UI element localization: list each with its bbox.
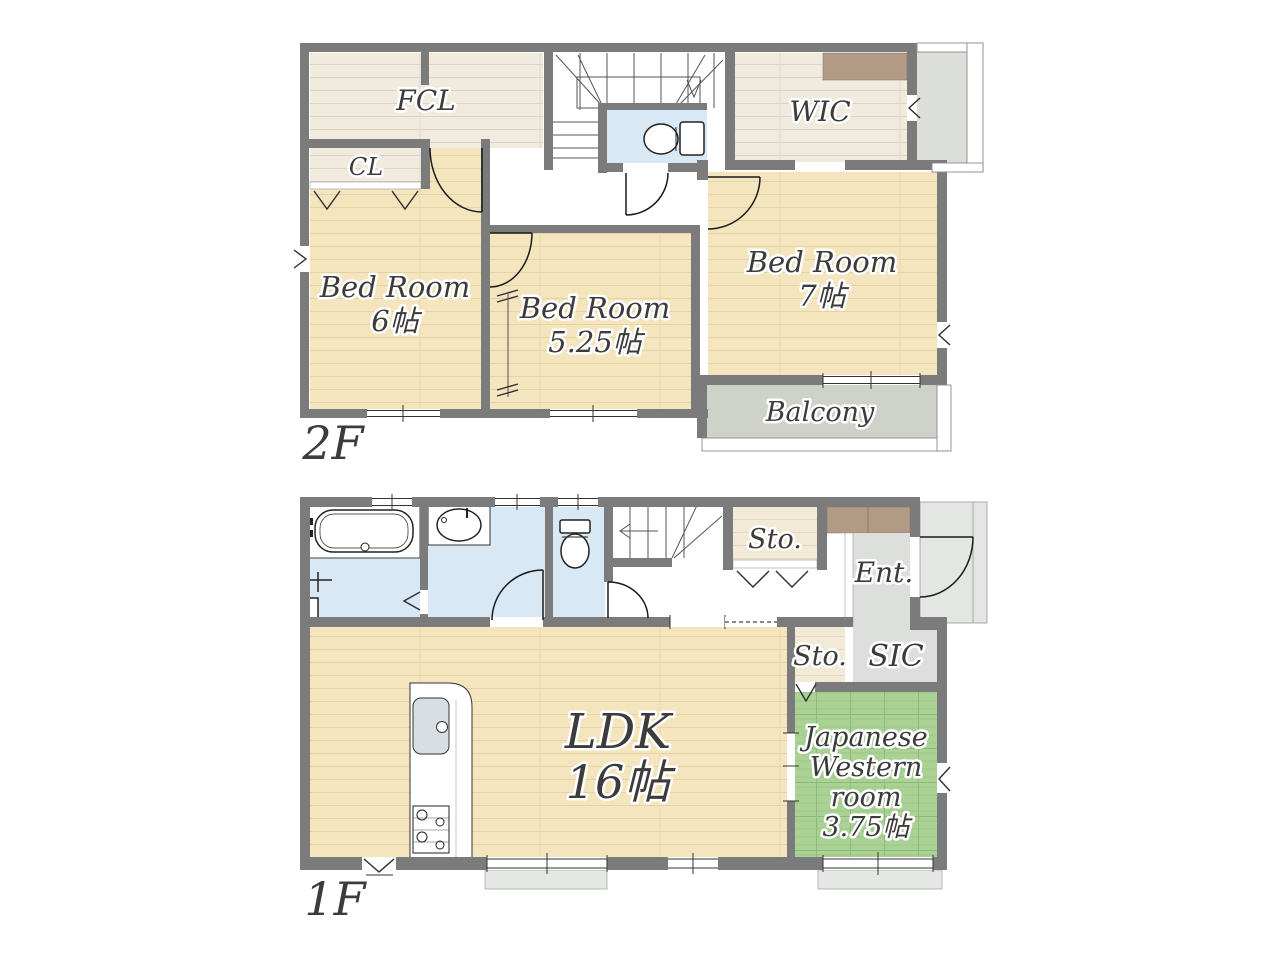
terrace-tatami bbox=[818, 870, 942, 889]
label-ldk-size: 16帖 bbox=[566, 755, 677, 809]
label-jwr-4: 3.75帖 bbox=[822, 812, 913, 843]
label-entrance: Ent. bbox=[854, 556, 914, 589]
label-jwr-1: Japanese bbox=[799, 722, 928, 753]
opening-ldk-tatami bbox=[787, 733, 795, 801]
label-cl: CL bbox=[349, 153, 383, 181]
label-sto-tatami: Sto. bbox=[793, 641, 847, 672]
label-bed7-size: 7帖 bbox=[798, 279, 849, 313]
label-fcl: FCL bbox=[395, 84, 455, 117]
entrance-step bbox=[845, 533, 853, 627]
label-bed6-name: Bed Room bbox=[319, 270, 471, 304]
kitchen-sink-icon bbox=[413, 698, 449, 754]
toilet-icon-1f bbox=[560, 520, 590, 568]
wic-closet bbox=[823, 53, 907, 80]
sliding-door-ldk bbox=[725, 617, 777, 627]
cl-shelf bbox=[310, 182, 421, 189]
roof-terrace bbox=[917, 52, 967, 163]
window-tatami-east bbox=[937, 763, 950, 793]
floorplan-page: FCL CL Bed Room 6帖 Bed Room 5.25帖 Bed Ro… bbox=[0, 0, 1280, 960]
label-jwr-2: Western bbox=[810, 752, 923, 783]
label-ldk-name: LDK bbox=[564, 704, 674, 760]
floor-1f-plan: Sto. Ent. Sto. SIC LDK 16帖 Japanese West… bbox=[280, 475, 1020, 925]
label-bed525-size: 5.25帖 bbox=[548, 325, 646, 359]
label-bed525-name: Bed Room bbox=[519, 291, 671, 325]
entrance-closet bbox=[827, 507, 910, 533]
floor-2f-plan: FCL CL Bed Room 6帖 Bed Room 5.25帖 Bed Ro… bbox=[280, 30, 1000, 470]
label-sto-hall: Sto. bbox=[748, 524, 802, 555]
room-ldk bbox=[310, 627, 787, 857]
label-balcony: Balcony bbox=[765, 397, 875, 428]
label-floor-2f: 2F bbox=[301, 416, 365, 470]
vent-ldk bbox=[362, 857, 396, 875]
label-wic: WIC bbox=[789, 95, 850, 128]
kitchen-counter bbox=[410, 683, 472, 858]
terrace-ldk bbox=[485, 870, 607, 889]
washbasin-icon bbox=[428, 503, 490, 545]
label-bed7-name: Bed Room bbox=[746, 245, 898, 279]
stove-icon bbox=[413, 806, 449, 853]
label-sic: SIC bbox=[868, 639, 923, 674]
entrance-porch bbox=[920, 502, 987, 623]
bathtub-icon bbox=[303, 505, 420, 558]
window-bed7-east bbox=[937, 322, 950, 348]
label-floor-1f: 1F bbox=[304, 872, 367, 925]
sto-hall-shelf bbox=[733, 560, 817, 568]
window-bed6-west bbox=[294, 246, 309, 272]
label-jwr-3: room bbox=[830, 782, 901, 813]
label-bed6-size: 6帖 bbox=[371, 304, 422, 338]
